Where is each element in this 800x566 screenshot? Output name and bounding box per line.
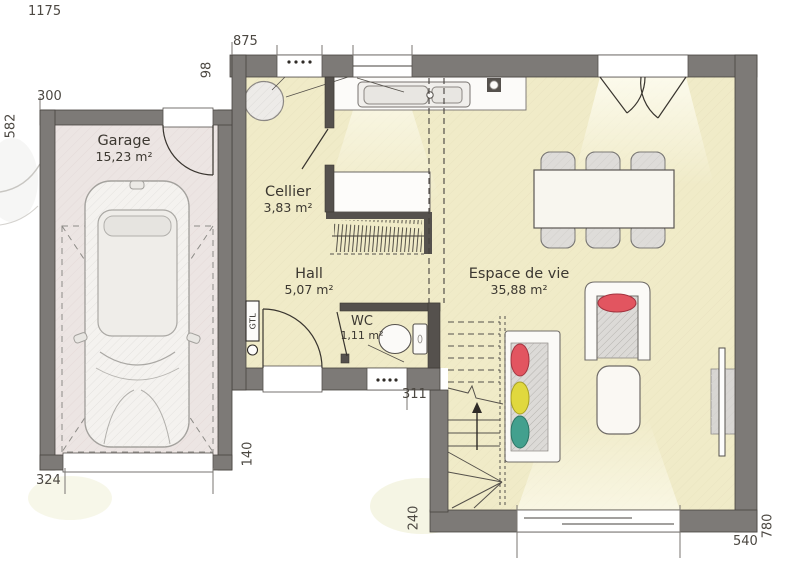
coffee-table <box>597 366 640 434</box>
hall-area: 5,07 m² <box>285 283 334 297</box>
plan-graphic <box>0 0 800 566</box>
kitchen-sink <box>358 82 470 107</box>
wc-label: WC 1,11 m² <box>340 315 383 343</box>
sofa-pillow-teal <box>511 416 529 448</box>
garage-name: Garage <box>96 133 153 150</box>
dim-rear-offset: 240 <box>408 506 423 531</box>
dining-table <box>534 170 674 228</box>
garage-label: Garage 15,23 m² <box>96 133 153 164</box>
tv-screen <box>719 348 725 456</box>
wc-area: 1,11 m² <box>340 330 383 343</box>
dim-entry-width: 311 <box>402 388 427 403</box>
dim-garage-width: 300 <box>37 90 62 105</box>
hall-label: Hall 5,07 m² <box>285 266 334 297</box>
kitchen-window <box>353 55 412 77</box>
dim-side-depth: 780 <box>762 514 777 539</box>
wc-window <box>367 368 407 390</box>
living-name: Espace de vie <box>469 266 570 283</box>
sofa-pillow-yellow <box>511 382 529 414</box>
bay-window <box>517 510 680 532</box>
armchair-pillow-red <box>598 294 636 312</box>
dim-bay-width: 540 <box>733 535 758 550</box>
garage-area: 15,23 m² <box>96 150 153 164</box>
dim-front-width: 875 <box>233 35 258 50</box>
sofa <box>505 331 560 462</box>
gtl-label: GTL <box>248 313 257 330</box>
garage-main-door <box>63 453 213 472</box>
armchair <box>585 282 650 360</box>
car <box>73 181 201 447</box>
living-area: 35,88 m² <box>469 283 570 297</box>
toilet <box>379 324 427 354</box>
wc-name: WC <box>340 315 383 330</box>
living-label: Espace de vie 35,88 m² <box>469 266 570 297</box>
dim-front-offset: 98 <box>201 62 216 79</box>
water-heater <box>245 82 284 121</box>
cellier-window <box>277 55 322 77</box>
dim-garage-door-width: 324 <box>36 474 61 489</box>
cellier-name: Cellier <box>264 184 313 201</box>
cellier-label: Cellier 3,83 m² <box>264 184 313 215</box>
hall-closet <box>326 172 432 254</box>
sofa-pillow-red <box>511 344 529 376</box>
dim-garage-depth: 582 <box>5 114 20 139</box>
kitchen-counter <box>334 77 526 110</box>
dim-total-width: 1175 <box>28 5 61 20</box>
floor-plan: Garage 15,23 m² Cellier 3,83 m² Hall 5,0… <box>0 0 800 566</box>
dining-set <box>534 152 674 248</box>
cellier-area: 3,83 m² <box>264 201 313 215</box>
dim-entry-depth: 140 <box>242 442 257 467</box>
hall-name: Hall <box>285 266 334 283</box>
